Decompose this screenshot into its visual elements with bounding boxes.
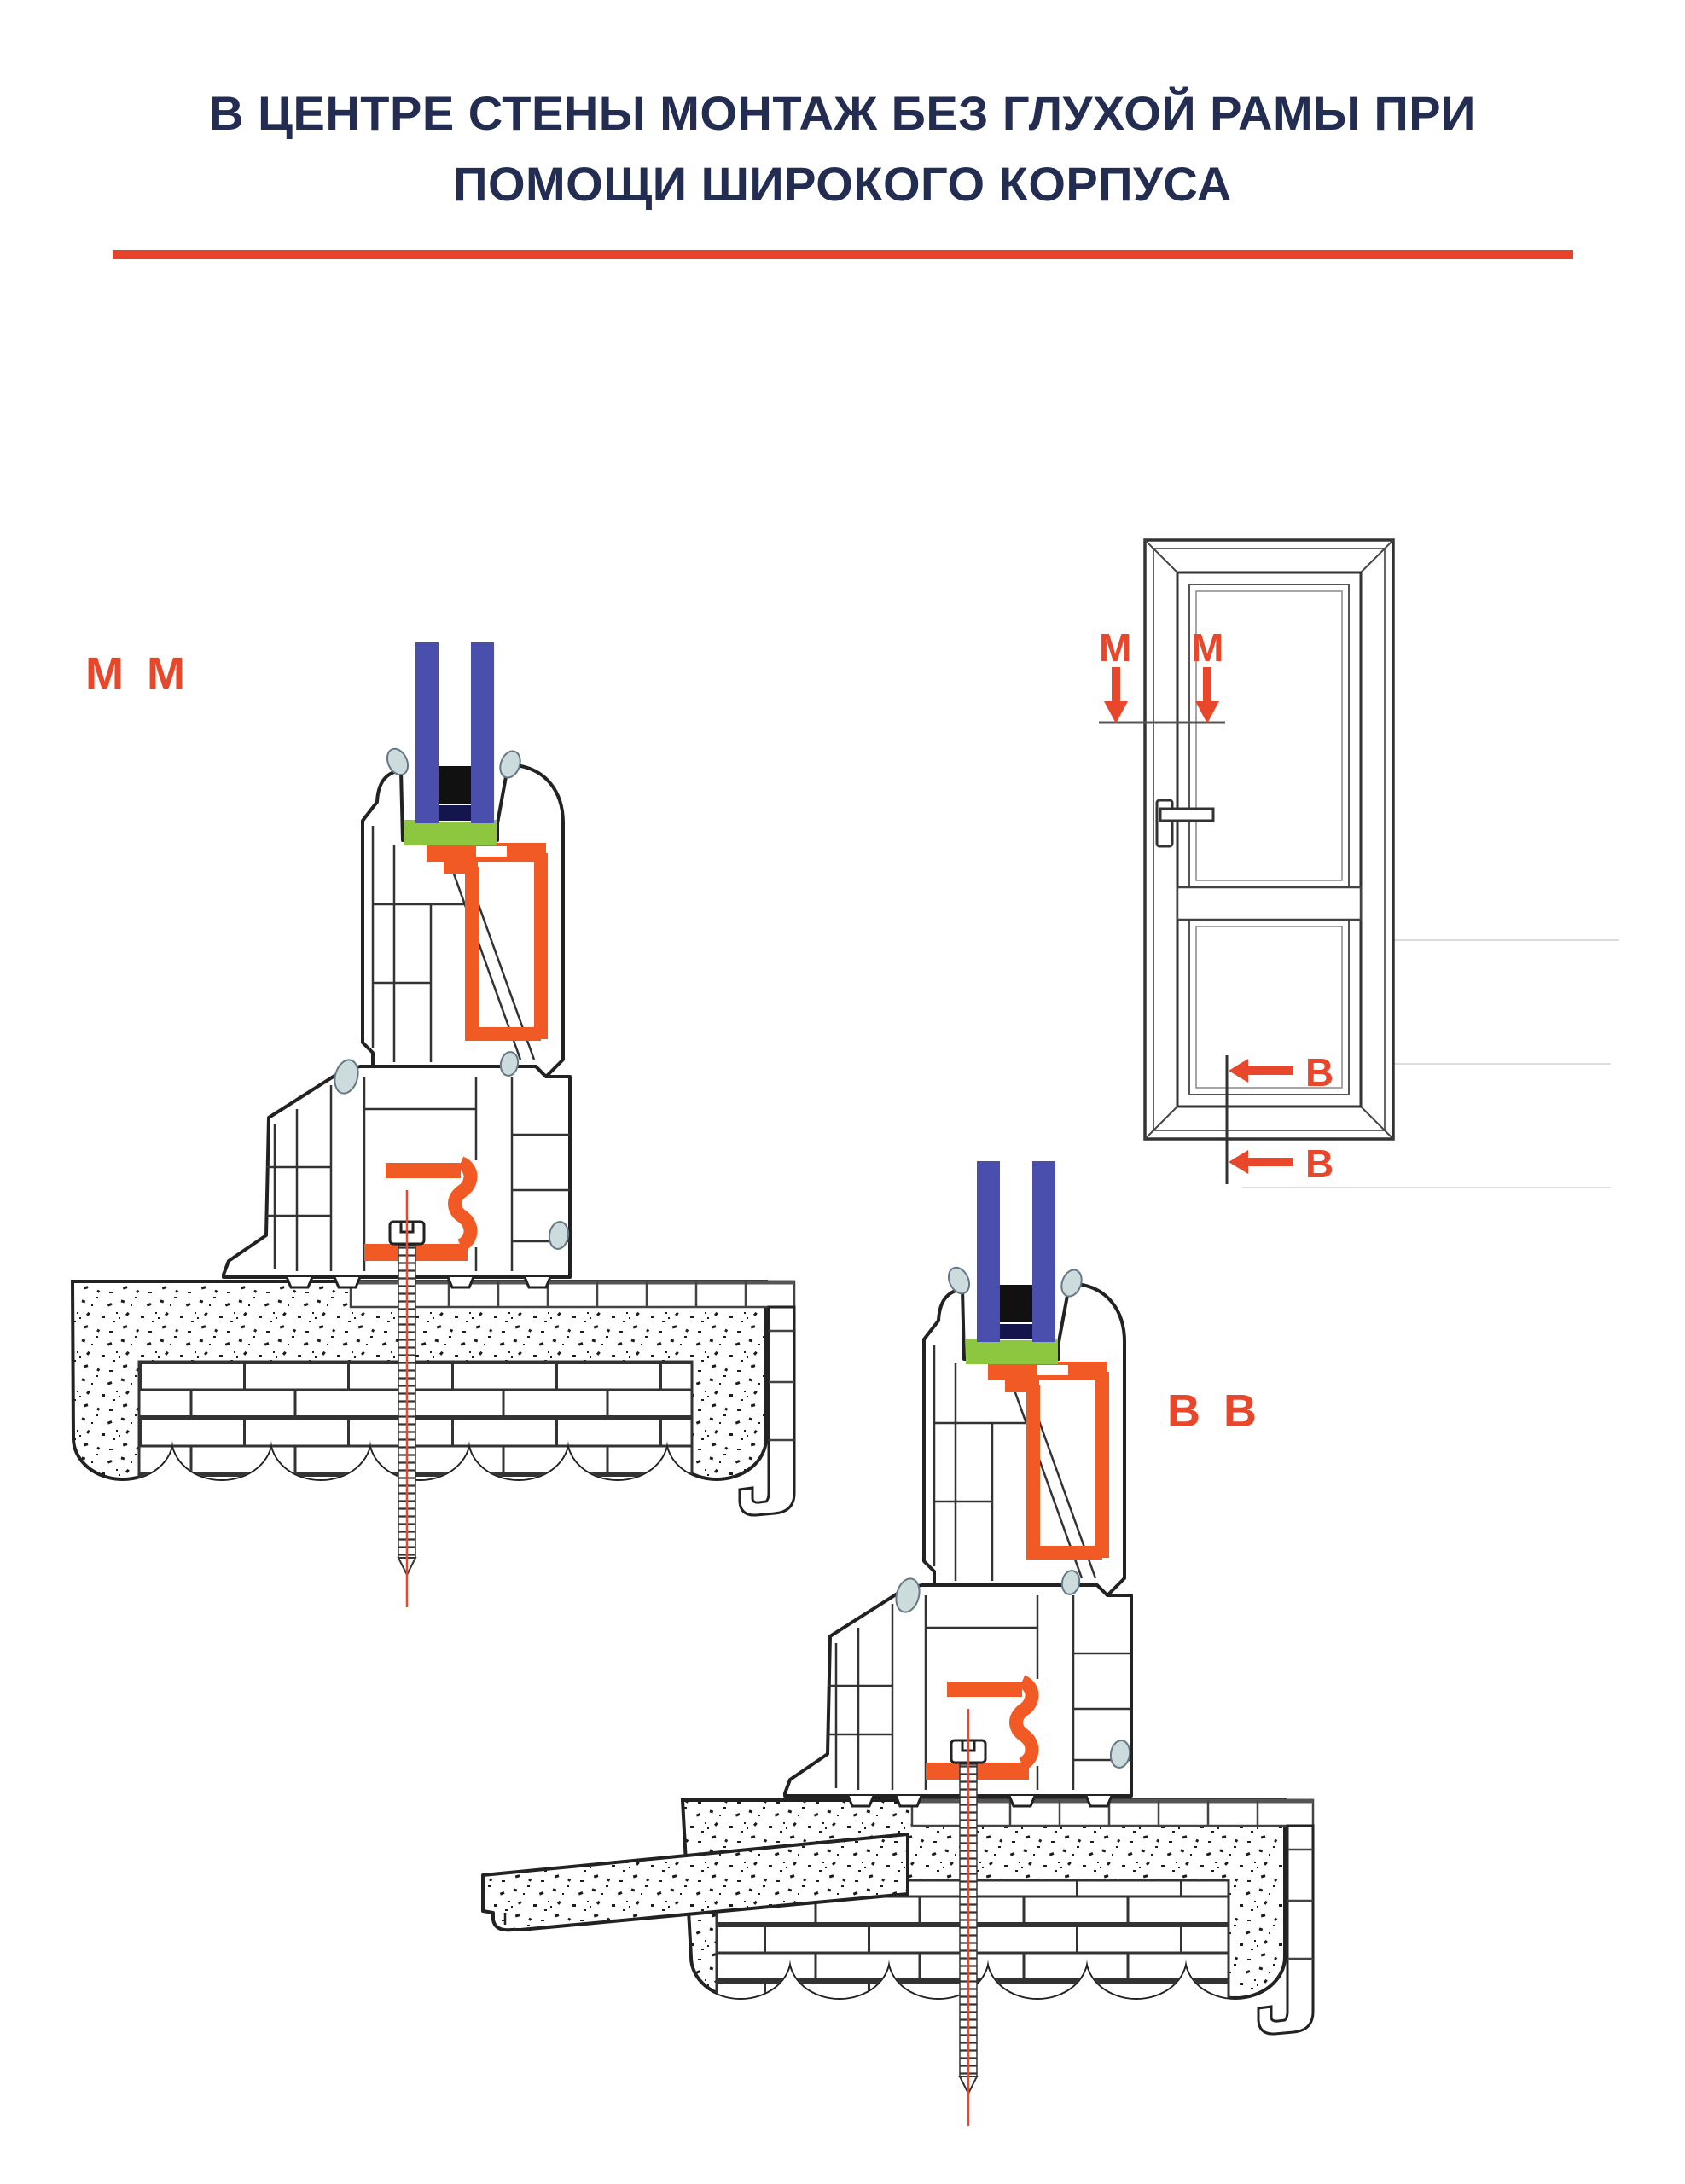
- wall-left: [73, 1281, 794, 1515]
- marker-b-upper: В: [1305, 1050, 1333, 1095]
- wall-right: [483, 1800, 1313, 2034]
- section-label-mm: М М: [85, 648, 190, 700]
- marker-m-right: М: [1191, 625, 1223, 670]
- door-mid-rail: [1177, 887, 1361, 920]
- document-page: В ЦЕНТРЕ СТЕНЫ МОНТАЖ БЕЗ ГЛУХОЙ РАМЫ ПР…: [0, 0, 1685, 2184]
- door-elevation: М М В В: [1099, 540, 1619, 1188]
- installation-technical-drawing: М М В В: [0, 0, 1685, 2184]
- marker-m-left: М: [1099, 625, 1131, 670]
- marker-b-lower: В: [1305, 1141, 1333, 1186]
- windowsill-board-left: [351, 1281, 794, 1307]
- section-label-bb: В В: [1167, 1385, 1262, 1437]
- section-view-mm: М М: [73, 642, 794, 1607]
